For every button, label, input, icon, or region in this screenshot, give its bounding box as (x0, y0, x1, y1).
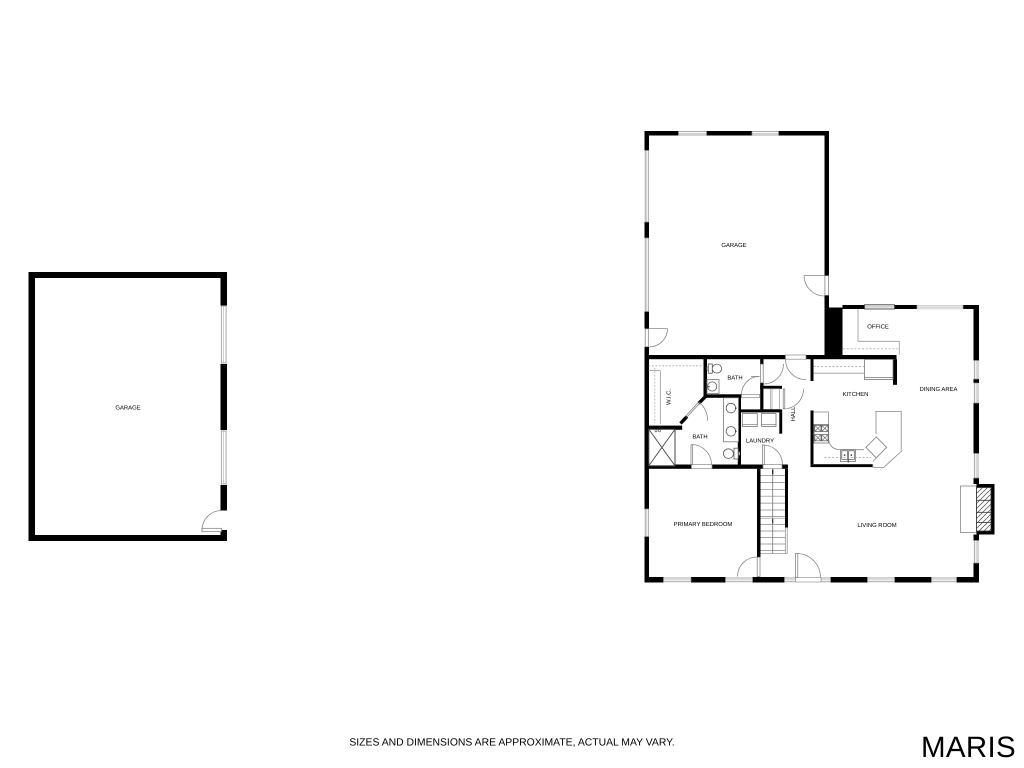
svg-text:HALL: HALL (790, 406, 797, 421)
svg-text:GARAGE: GARAGE (721, 242, 746, 249)
svg-text:W.I.C.: W.I.C. (666, 389, 673, 405)
svg-text:PRIMARY BEDROOM: PRIMARY BEDROOM (674, 521, 733, 528)
svg-text:MARIS: MARIS (921, 731, 1016, 764)
svg-text:BATH: BATH (727, 375, 742, 382)
svg-text:GARAGE: GARAGE (115, 405, 140, 412)
svg-text:DINING AREA: DINING AREA (920, 386, 958, 393)
svg-text:LIVING ROOM: LIVING ROOM (857, 522, 896, 529)
svg-text:LAUNDRY: LAUNDRY (746, 438, 774, 445)
svg-text:OFFICE: OFFICE (867, 324, 889, 331)
svg-text:BATH: BATH (692, 434, 707, 441)
svg-text:SIZES AND DIMENSIONS ARE APPRO: SIZES AND DIMENSIONS ARE APPROXIMATE, AC… (349, 738, 674, 749)
svg-text:KITCHEN: KITCHEN (843, 391, 869, 398)
